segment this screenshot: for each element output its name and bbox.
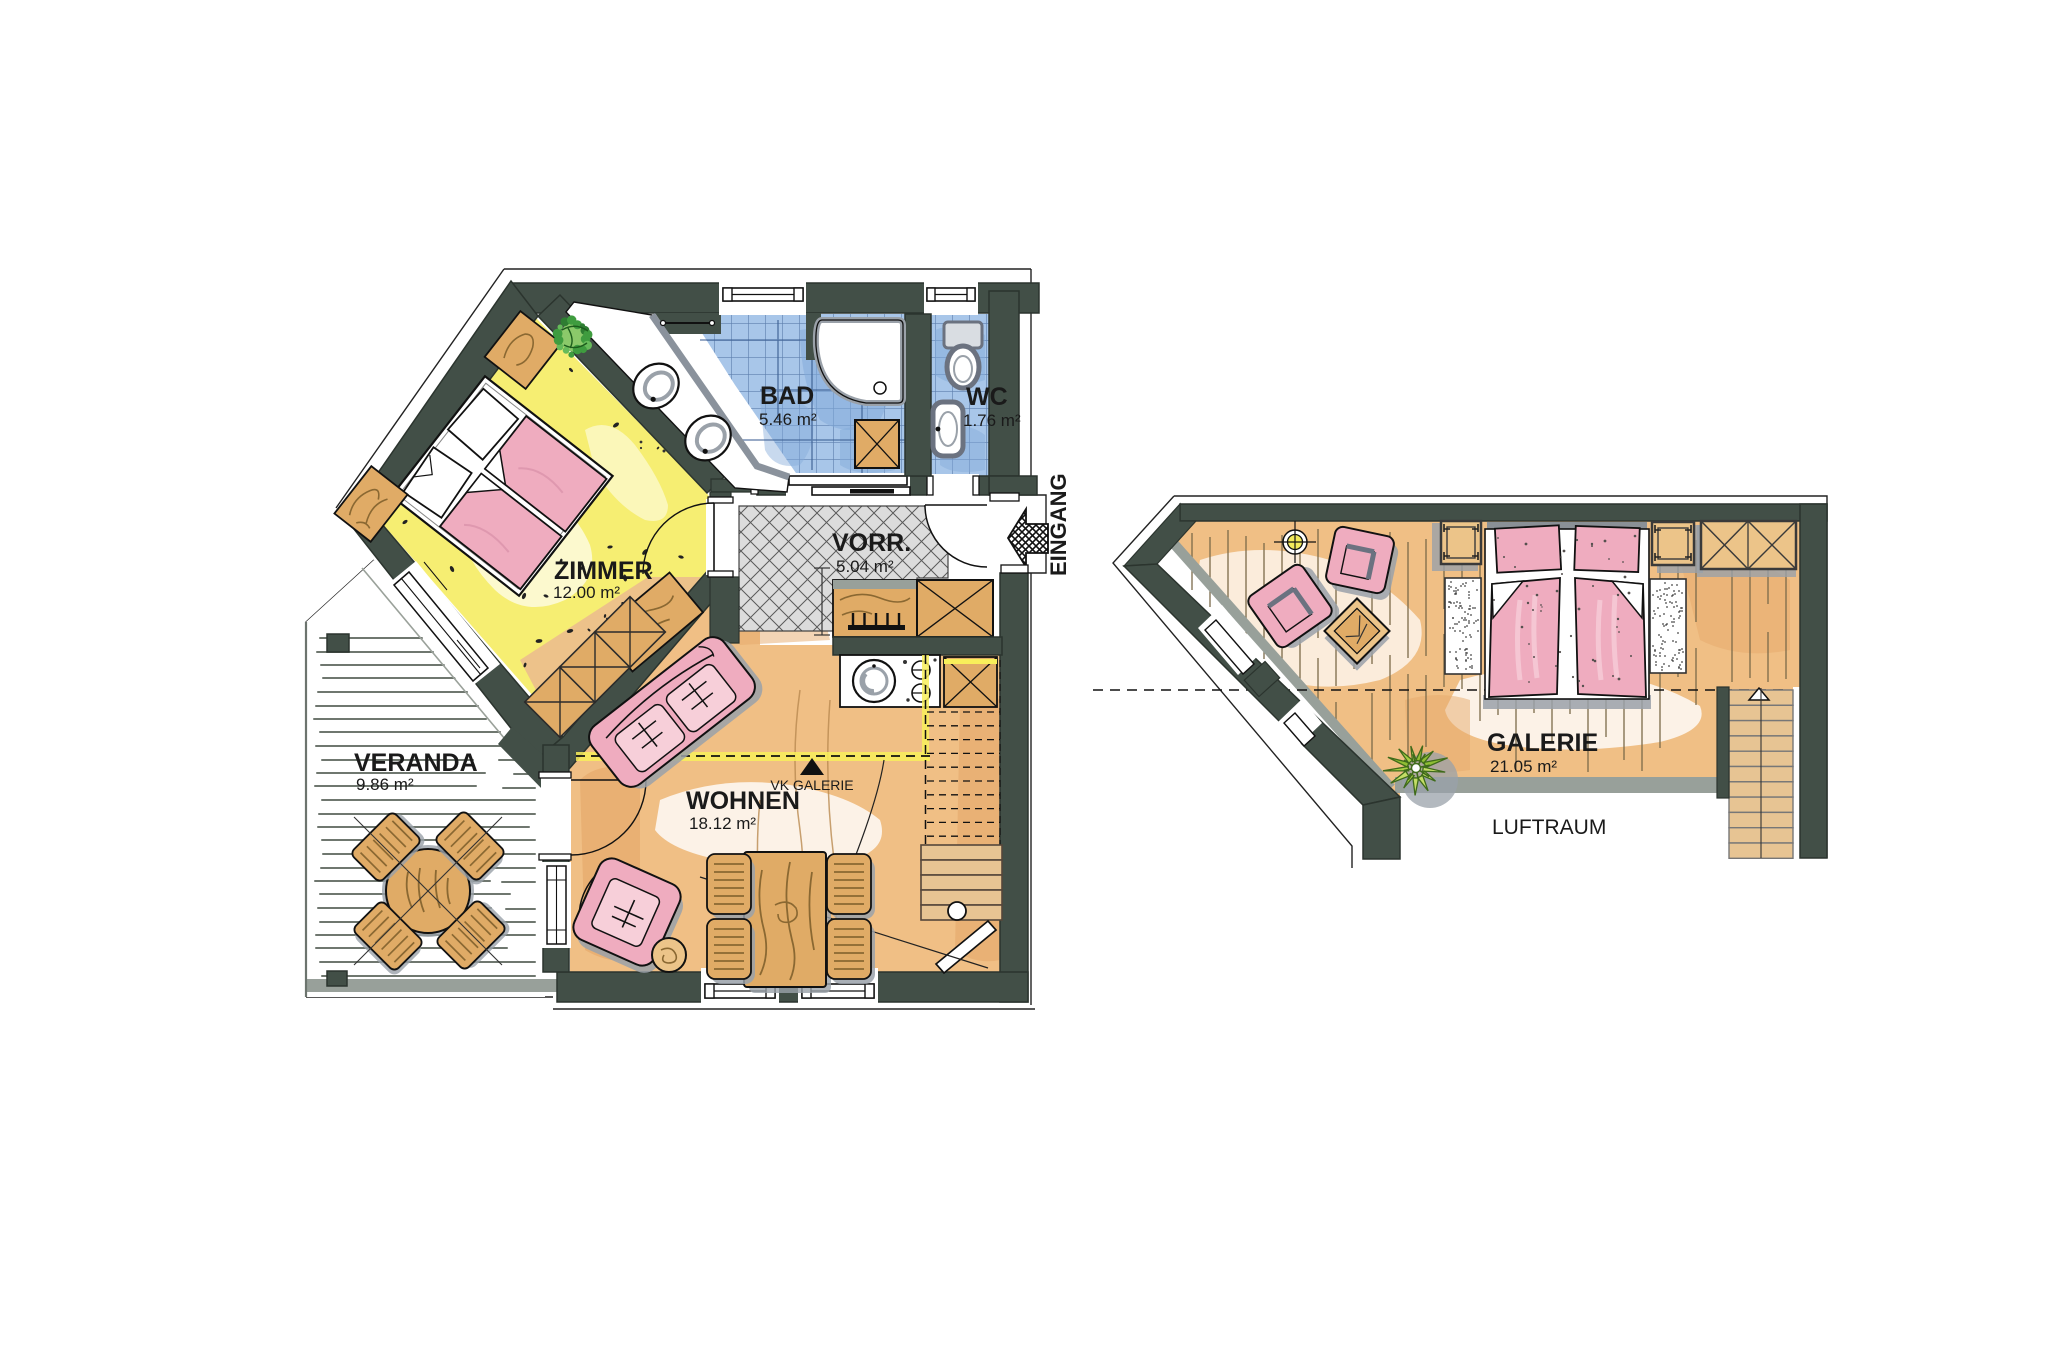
svg-text:9.86 m²: 9.86 m²	[356, 775, 414, 794]
svg-text:12.00 m²: 12.00 m²	[553, 583, 620, 602]
svg-text:VERANDA: VERANDA	[354, 749, 478, 777]
svg-text:5.04 m²: 5.04 m²	[836, 557, 894, 576]
svg-text:5.46 m²: 5.46 m²	[759, 410, 817, 429]
svg-text:21.05 m²: 21.05 m²	[1490, 757, 1557, 776]
svg-text:WC: WC	[966, 383, 1008, 411]
svg-text:GALERIE: GALERIE	[1487, 729, 1598, 757]
svg-text:LUFTRAUM: LUFTRAUM	[1492, 816, 1606, 839]
svg-text:ZIMMER: ZIMMER	[554, 557, 653, 585]
svg-text:BAD: BAD	[760, 382, 814, 410]
svg-text:VORR.: VORR.	[832, 529, 911, 557]
svg-text:18.12 m²: 18.12 m²	[689, 814, 756, 833]
svg-text:WOHNEN: WOHNEN	[686, 787, 800, 815]
svg-text:1.76 m²: 1.76 m²	[963, 411, 1021, 430]
svg-text:EINGANG: EINGANG	[1046, 473, 1071, 576]
